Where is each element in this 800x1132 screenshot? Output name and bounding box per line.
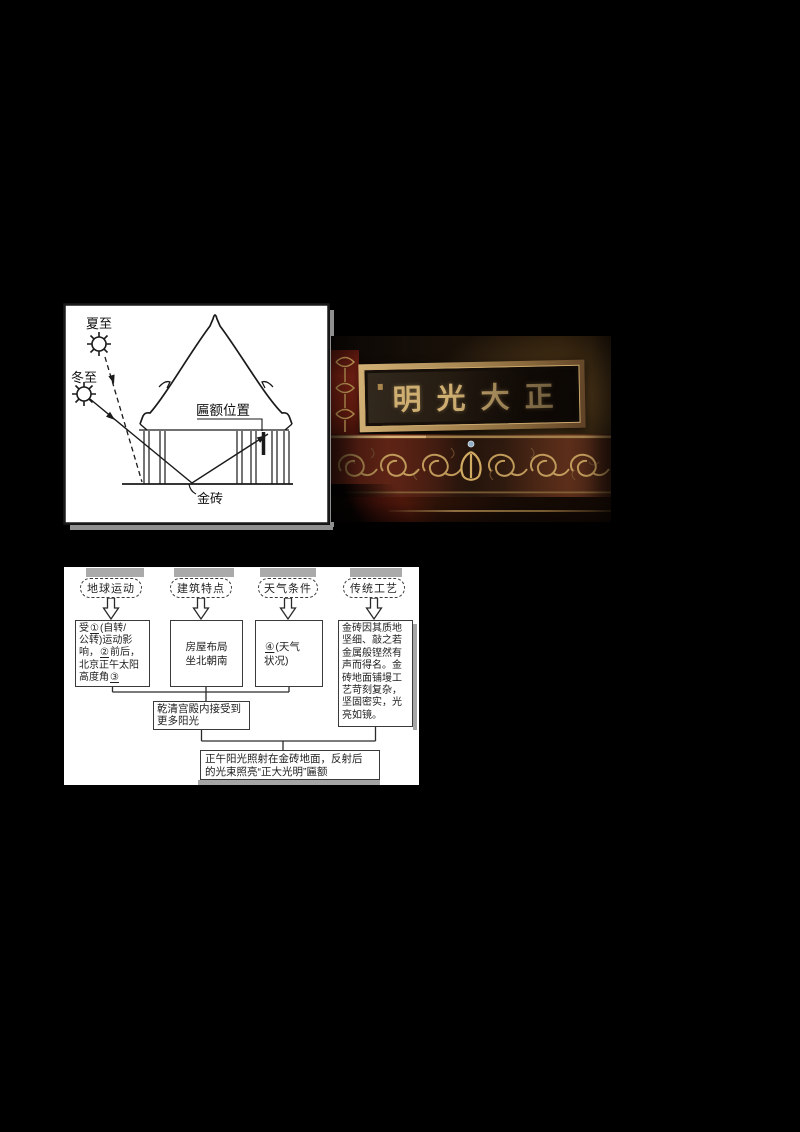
text-line: 状况) [264,654,322,668]
text-line: 坚细、敲之若 [342,635,409,647]
craft-box: 金砖因其质地 坚细、敲之若 金属般铿然有 声而得名。金 砖地面铺墁工 艺苛刻复杂… [338,620,413,727]
plaque-shadow-overlay [364,366,579,426]
text-line: 公转)运动影 [79,635,146,647]
category-label: 天气条件 [264,580,312,596]
block-arrows [104,598,382,619]
text-line: 金属般铿然有 [342,648,409,660]
solar-diagram-panel: 夏至 冬至 匾额位置 金砖 [63,303,330,525]
category-label: 建筑特点 [177,580,225,596]
text-line: 响，②前后， [79,647,146,659]
text-line: ④(天气 [264,640,322,654]
text-line: 的光束照亮“正大光明”匾额 [205,766,375,779]
text-line: 砖地面铺墁工 [342,673,409,685]
carved-red-pillar [331,350,359,436]
text-line: 高度角③ [79,672,146,684]
text-line: 亮如镜。 [342,710,409,722]
gold-brick-label: 金砖 [197,491,223,506]
category-building-features: 建筑特点 [170,578,232,598]
earth-motion-box: 受①(自转/ 公转)运动影 响，②前后， 北京正午太阳 高度角③ [75,620,150,687]
scanned-document-page: 夏至 冬至 匾额位置 金砖 [0,0,800,1132]
text-line: 坐北朝南 [186,654,228,668]
category-earth-motion: 地球运动 [80,578,142,598]
text-line: 金砖因其质地 [342,623,409,635]
text-line: 更多阳光 [157,716,246,728]
palace-sunlight-box: 乾清宫殿内接受到 更多阳光 [153,701,250,730]
concept-flowchart: 地球运动 建筑特点 天气条件 传统工艺 受①(自转/ 公转)运动影 响，②前后，… [64,567,419,785]
diagram-shadow-bottom [70,525,333,530]
text-line: 声而得名。金 [342,660,409,672]
conclusion-box: 正午阳光照射在金砖地面，反射后 的光束照亮“正大光明”匾额 [200,750,380,780]
winter-sun-icon [72,382,96,406]
text-line: 受①(自转/ [79,623,146,635]
text-line: 房屋布局 [186,640,228,654]
weather-box: ④(天气 状况) [255,620,323,687]
solar-diagram: 夏至 冬至 匾额位置 金砖 [63,303,330,525]
category-label: 地球运动 [87,580,135,596]
plaque-position-label: 匾额位置 [196,403,250,418]
text-line: 正午阳光照射在金砖地面，反射后 [205,753,375,766]
category-label: 传统工艺 [350,580,398,596]
plaque-photo: 明光大正 [331,336,611,522]
category-weather-conditions: 天气条件 [258,578,318,598]
summer-sun-icon [87,332,111,356]
text-line: 北京正午太阳 [79,660,146,672]
plaque-board: 明光大正 [363,365,580,428]
category-traditional-craft: 传统工艺 [343,578,405,598]
building-layout-box: 房屋布局 坐北朝南 [170,620,243,687]
zhengdaguangming-plaque: 明光大正 [358,360,585,433]
text-line: 坚固密实，光 [342,697,409,709]
summer-solstice-label: 夏至 [86,316,112,331]
text-line: 艺苛刻复杂， [342,685,409,697]
pillar-ornament [331,350,359,436]
corner-shadow [331,484,463,522]
